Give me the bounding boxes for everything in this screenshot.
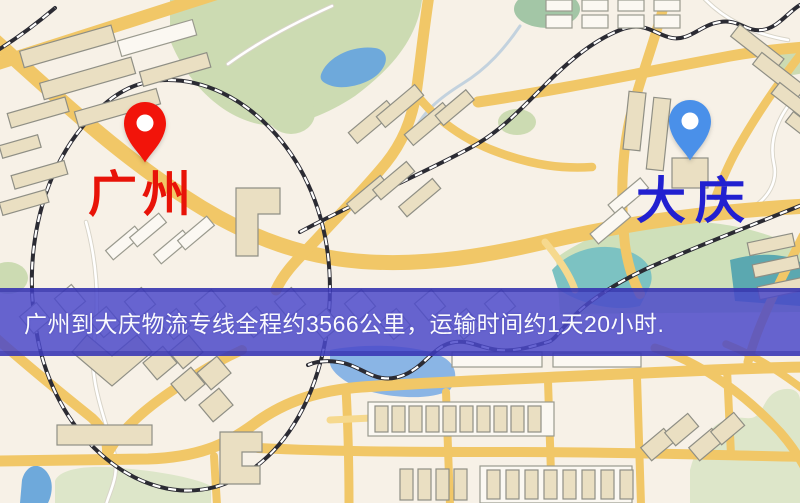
destination-pin-icon[interactable] (667, 99, 713, 163)
route-info-banner: 广州到大庆物流专线全程约3566公里，运输时间约1天20小时. (0, 288, 800, 356)
origin-pin-icon[interactable] (122, 101, 168, 165)
destination-label: 大庆 (636, 176, 754, 226)
map-background (0, 0, 800, 503)
route-info-text: 广州到大庆物流专线全程约3566公里，运输时间约1天20小时. (0, 305, 664, 339)
origin-label: 广州 (88, 170, 196, 219)
map-canvas[interactable]: 广州 大庆 广州到大庆物流专线全程约3566公里，运输时间约1天20小时. (0, 0, 800, 503)
